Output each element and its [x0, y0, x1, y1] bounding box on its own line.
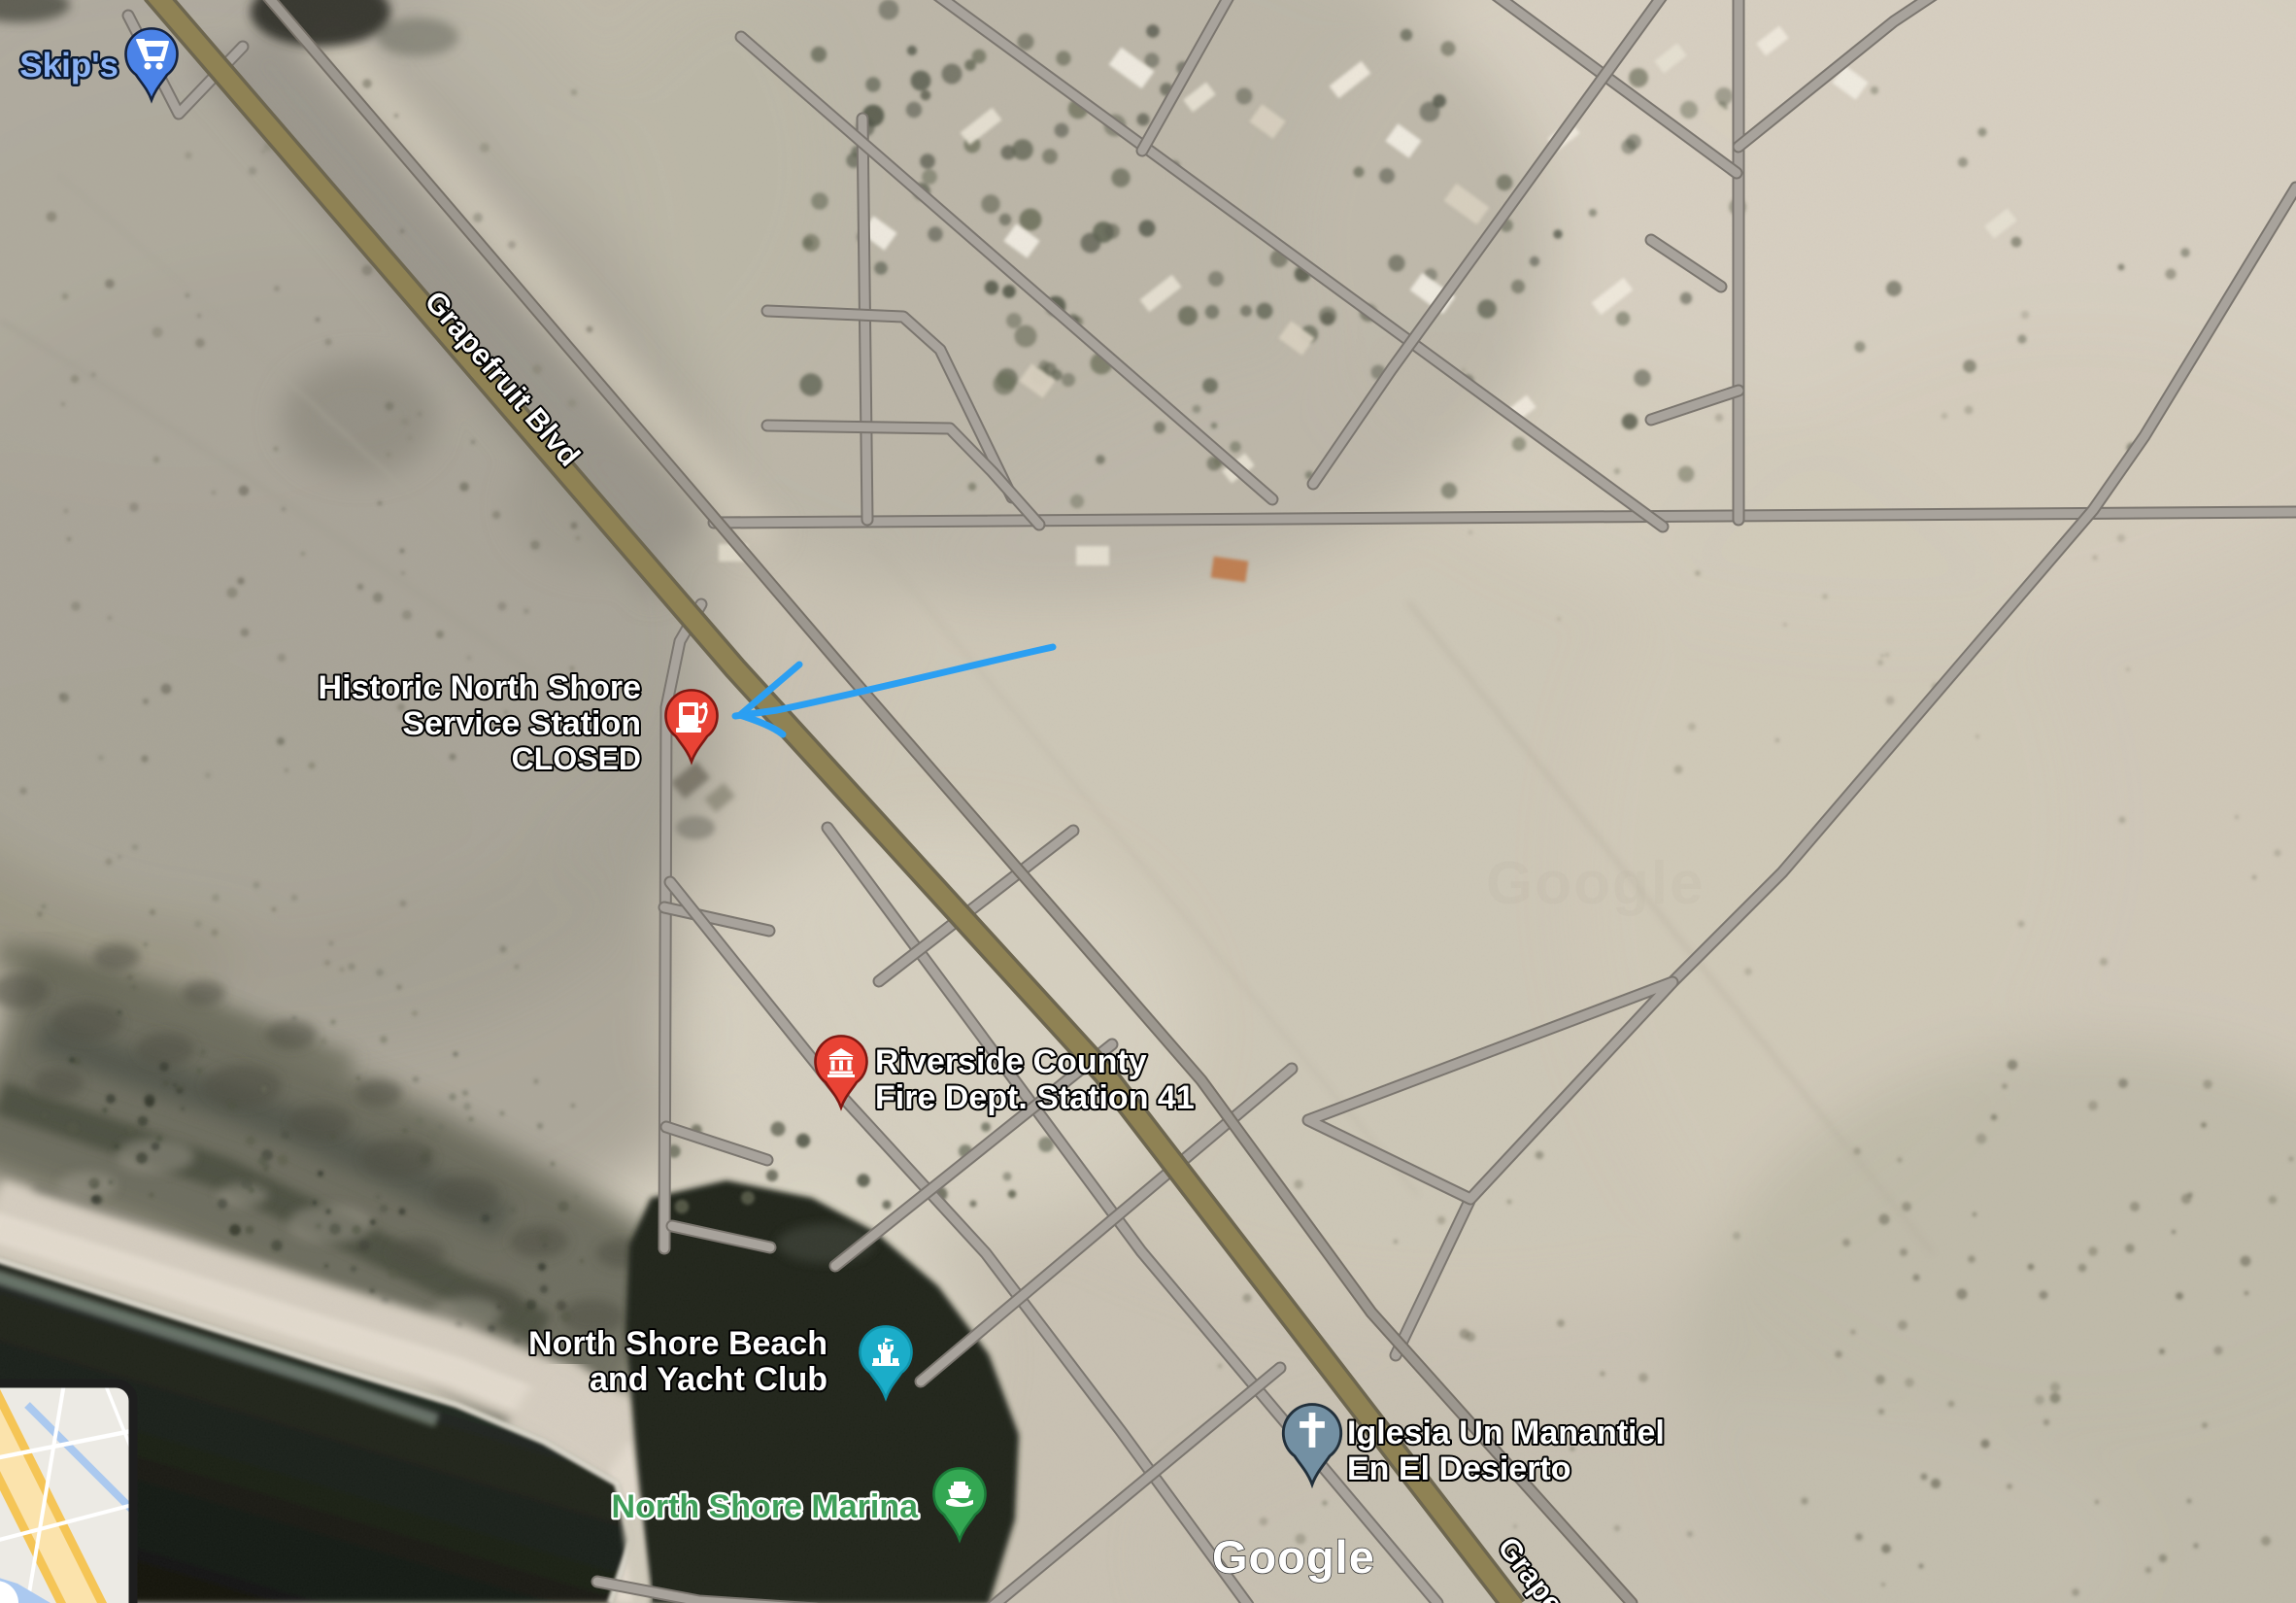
- svg-text:Iglesia Un Manantiel: Iglesia Un Manantiel: [1347, 1415, 1665, 1451]
- svg-text:CLOSED: CLOSED: [512, 741, 641, 776]
- svg-text:North Shore Marina: North Shore Marina: [612, 1488, 920, 1525]
- svg-text:and Yacht Club: and Yacht Club: [590, 1361, 827, 1398]
- svg-text:Google: Google: [1212, 1531, 1375, 1583]
- svg-text:Fire Dept. Station 41: Fire Dept. Station 41: [875, 1079, 1195, 1116]
- svg-text:Skip's: Skip's: [19, 47, 118, 85]
- svg-text:North Shore Beach: North Shore Beach: [528, 1325, 827, 1362]
- svg-text:En El Desierto: En El Desierto: [1347, 1450, 1571, 1487]
- svg-text:Service Station: Service Station: [402, 705, 641, 742]
- svg-text:Historic North Shore: Historic North Shore: [319, 669, 641, 706]
- svg-text:Riverside County: Riverside County: [875, 1043, 1147, 1080]
